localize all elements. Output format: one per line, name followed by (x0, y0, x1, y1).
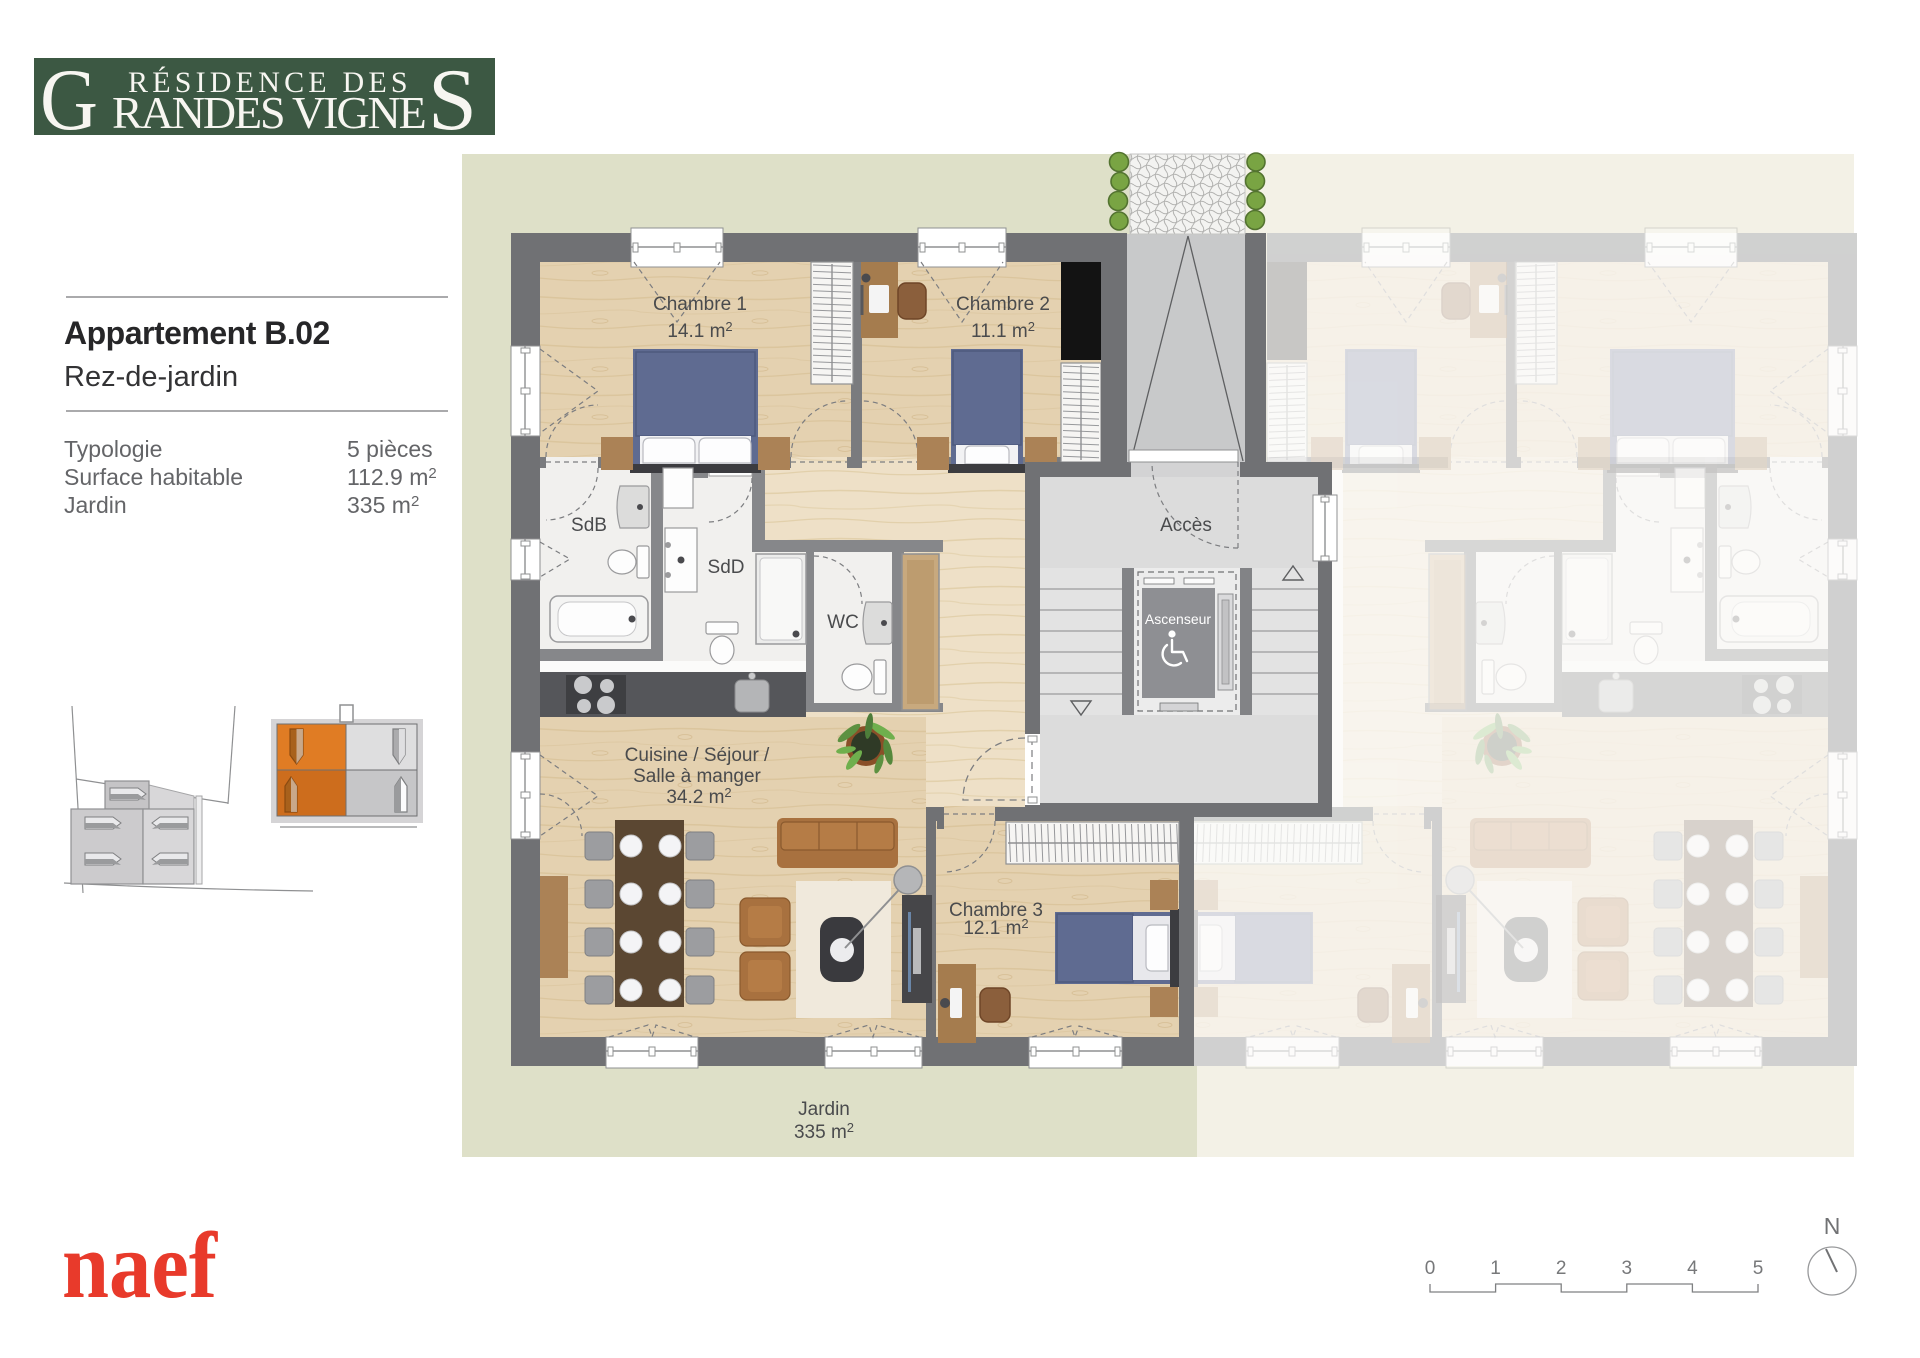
svg-text:Typologie: Typologie (64, 436, 162, 462)
svg-text:Accès: Accès (1160, 515, 1212, 536)
svg-text:34.2 m2: 34.2 m2 (666, 785, 731, 808)
svg-text:335 m2: 335 m2 (794, 1120, 854, 1143)
svg-text:1: 1 (1490, 1258, 1501, 1279)
svg-text:3: 3 (1622, 1258, 1633, 1279)
svg-text:Jardin: Jardin (798, 1099, 850, 1120)
svg-text:14.1 m2: 14.1 m2 (667, 319, 732, 342)
svg-text:Appartement B.02: Appartement B.02 (64, 315, 330, 351)
svg-text:naef: naef (62, 1214, 219, 1318)
svg-text:Jardin: Jardin (64, 492, 127, 518)
svg-text:5: 5 (1753, 1258, 1764, 1279)
svg-text:Salle à manger: Salle à manger (633, 766, 761, 787)
svg-text:Rez-de-jardin: Rez-de-jardin (64, 361, 238, 393)
svg-text:G: G (40, 52, 98, 149)
svg-text:S: S (428, 52, 477, 149)
svg-text:Cuisine / Séjour /: Cuisine / Séjour / (625, 745, 770, 766)
svg-text:2: 2 (1556, 1258, 1567, 1279)
svg-text:Chambre 2: Chambre 2 (956, 294, 1050, 315)
svg-text:N: N (1824, 1213, 1841, 1239)
svg-text:RANDES VIGNE: RANDES VIGNE (112, 87, 425, 138)
svg-text:SdB: SdB (571, 515, 607, 536)
svg-text:12.1 m2: 12.1 m2 (963, 916, 1028, 939)
svg-text:WC: WC (827, 612, 859, 633)
svg-text:SdD: SdD (708, 557, 745, 578)
svg-text:Chambre 1: Chambre 1 (653, 294, 747, 315)
svg-text:Surface habitable: Surface habitable (64, 464, 243, 490)
svg-text:335 m2: 335 m2 (347, 492, 419, 518)
svg-text:Ascenseur: Ascenseur (1145, 611, 1211, 627)
svg-text:4: 4 (1687, 1258, 1698, 1279)
svg-text:112.9 m2: 112.9 m2 (347, 464, 437, 490)
svg-text:5 pièces: 5 pièces (347, 436, 433, 462)
svg-text:11.1 m2: 11.1 m2 (971, 319, 1035, 342)
svg-text:0: 0 (1425, 1258, 1436, 1279)
